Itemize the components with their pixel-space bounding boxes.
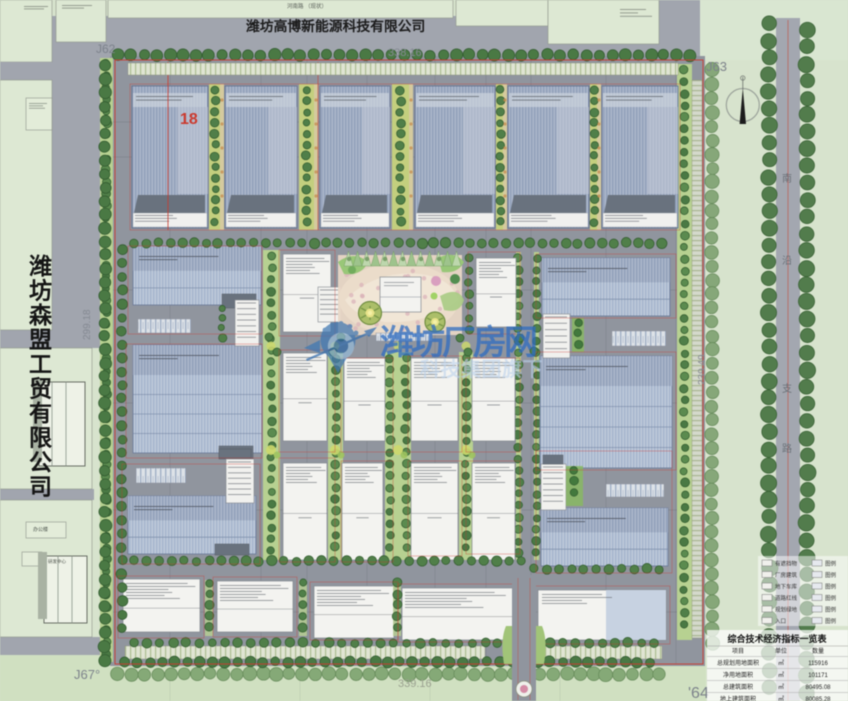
svg-text:河南路 （现状）: 河南路 （现状）	[287, 2, 327, 10]
svg-text:盟: 盟	[29, 327, 52, 353]
svg-text:图例: 图例	[825, 606, 837, 614]
svg-text:338.16: 338.16	[388, 47, 422, 59]
svg-text:研发中心: 研发中心	[48, 558, 66, 565]
svg-text:潍坊厂房网: 潍坊厂房网	[380, 324, 536, 362]
svg-text:厂房建筑: 厂房建筑	[775, 571, 798, 579]
svg-text:J62: J62	[96, 42, 116, 56]
svg-text:总建筑面积: 总建筑面积	[723, 683, 753, 691]
svg-text:299.18: 299.18	[82, 309, 93, 340]
svg-text:图例: 图例	[825, 560, 837, 568]
svg-text:㎡: ㎡	[778, 671, 784, 679]
svg-text:图例: 图例	[825, 617, 837, 625]
svg-text:有: 有	[29, 400, 52, 426]
svg-text:115916: 115916	[808, 661, 828, 667]
svg-text:净用地面积: 净用地面积	[723, 671, 753, 679]
svg-text:单位: 单位	[775, 647, 787, 655]
svg-text:数量: 数量	[812, 647, 824, 655]
svg-text:规划绿地: 规划绿地	[775, 606, 798, 614]
svg-text:路: 路	[782, 442, 792, 455]
svg-text:总规划用地面积: 总规划用地面积	[717, 659, 759, 667]
svg-text:项目: 项目	[732, 648, 744, 655]
svg-text:图例: 图例	[825, 594, 837, 602]
svg-text:坊: 坊	[29, 278, 52, 304]
svg-text:有遮挡物: 有遮挡物	[775, 560, 798, 568]
svg-text:入口: 入口	[775, 618, 786, 625]
svg-text:18: 18	[180, 111, 198, 128]
svg-text:工: 工	[29, 351, 52, 377]
svg-text:司: 司	[29, 474, 52, 500]
svg-text:沿: 沿	[782, 255, 792, 267]
svg-text:339.16: 339.16	[398, 678, 432, 690]
svg-text:办公楼: 办公楼	[33, 526, 48, 533]
svg-text:239.49: 239.49	[697, 354, 708, 385]
svg-text:贸: 贸	[29, 376, 52, 402]
svg-text:图例: 图例	[825, 583, 837, 591]
svg-text:'64: '64	[688, 685, 709, 701]
svg-text:80495.08: 80495.08	[805, 685, 831, 691]
svg-text:森: 森	[29, 302, 53, 328]
svg-text:公: 公	[29, 449, 52, 475]
svg-text:南: 南	[782, 172, 792, 185]
svg-text:㎡: ㎡	[778, 683, 784, 691]
svg-text:潍: 潍	[29, 253, 52, 279]
svg-text:支: 支	[782, 383, 792, 395]
svg-text:㎡: ㎡	[778, 659, 784, 667]
svg-text:道路红线: 道路红线	[775, 594, 798, 602]
svg-text:科技集团旗下: 科技集团旗下	[420, 357, 543, 381]
svg-text:J63: J63	[706, 59, 727, 74]
svg-text:101171: 101171	[808, 673, 828, 679]
svg-text:地下车库: 地下车库	[775, 583, 798, 591]
svg-text:限: 限	[29, 425, 52, 451]
svg-text:潍坊高博新能源科技有限公司: 潍坊高博新能源科技有限公司	[246, 18, 425, 34]
svg-text:J67°: J67°	[74, 667, 100, 682]
svg-text:综合技术经济指标一览表: 综合技术经济指标一览表	[727, 633, 827, 644]
svg-text:80085.28: 80085.28	[805, 697, 831, 701]
svg-text:图例: 图例	[825, 571, 837, 579]
